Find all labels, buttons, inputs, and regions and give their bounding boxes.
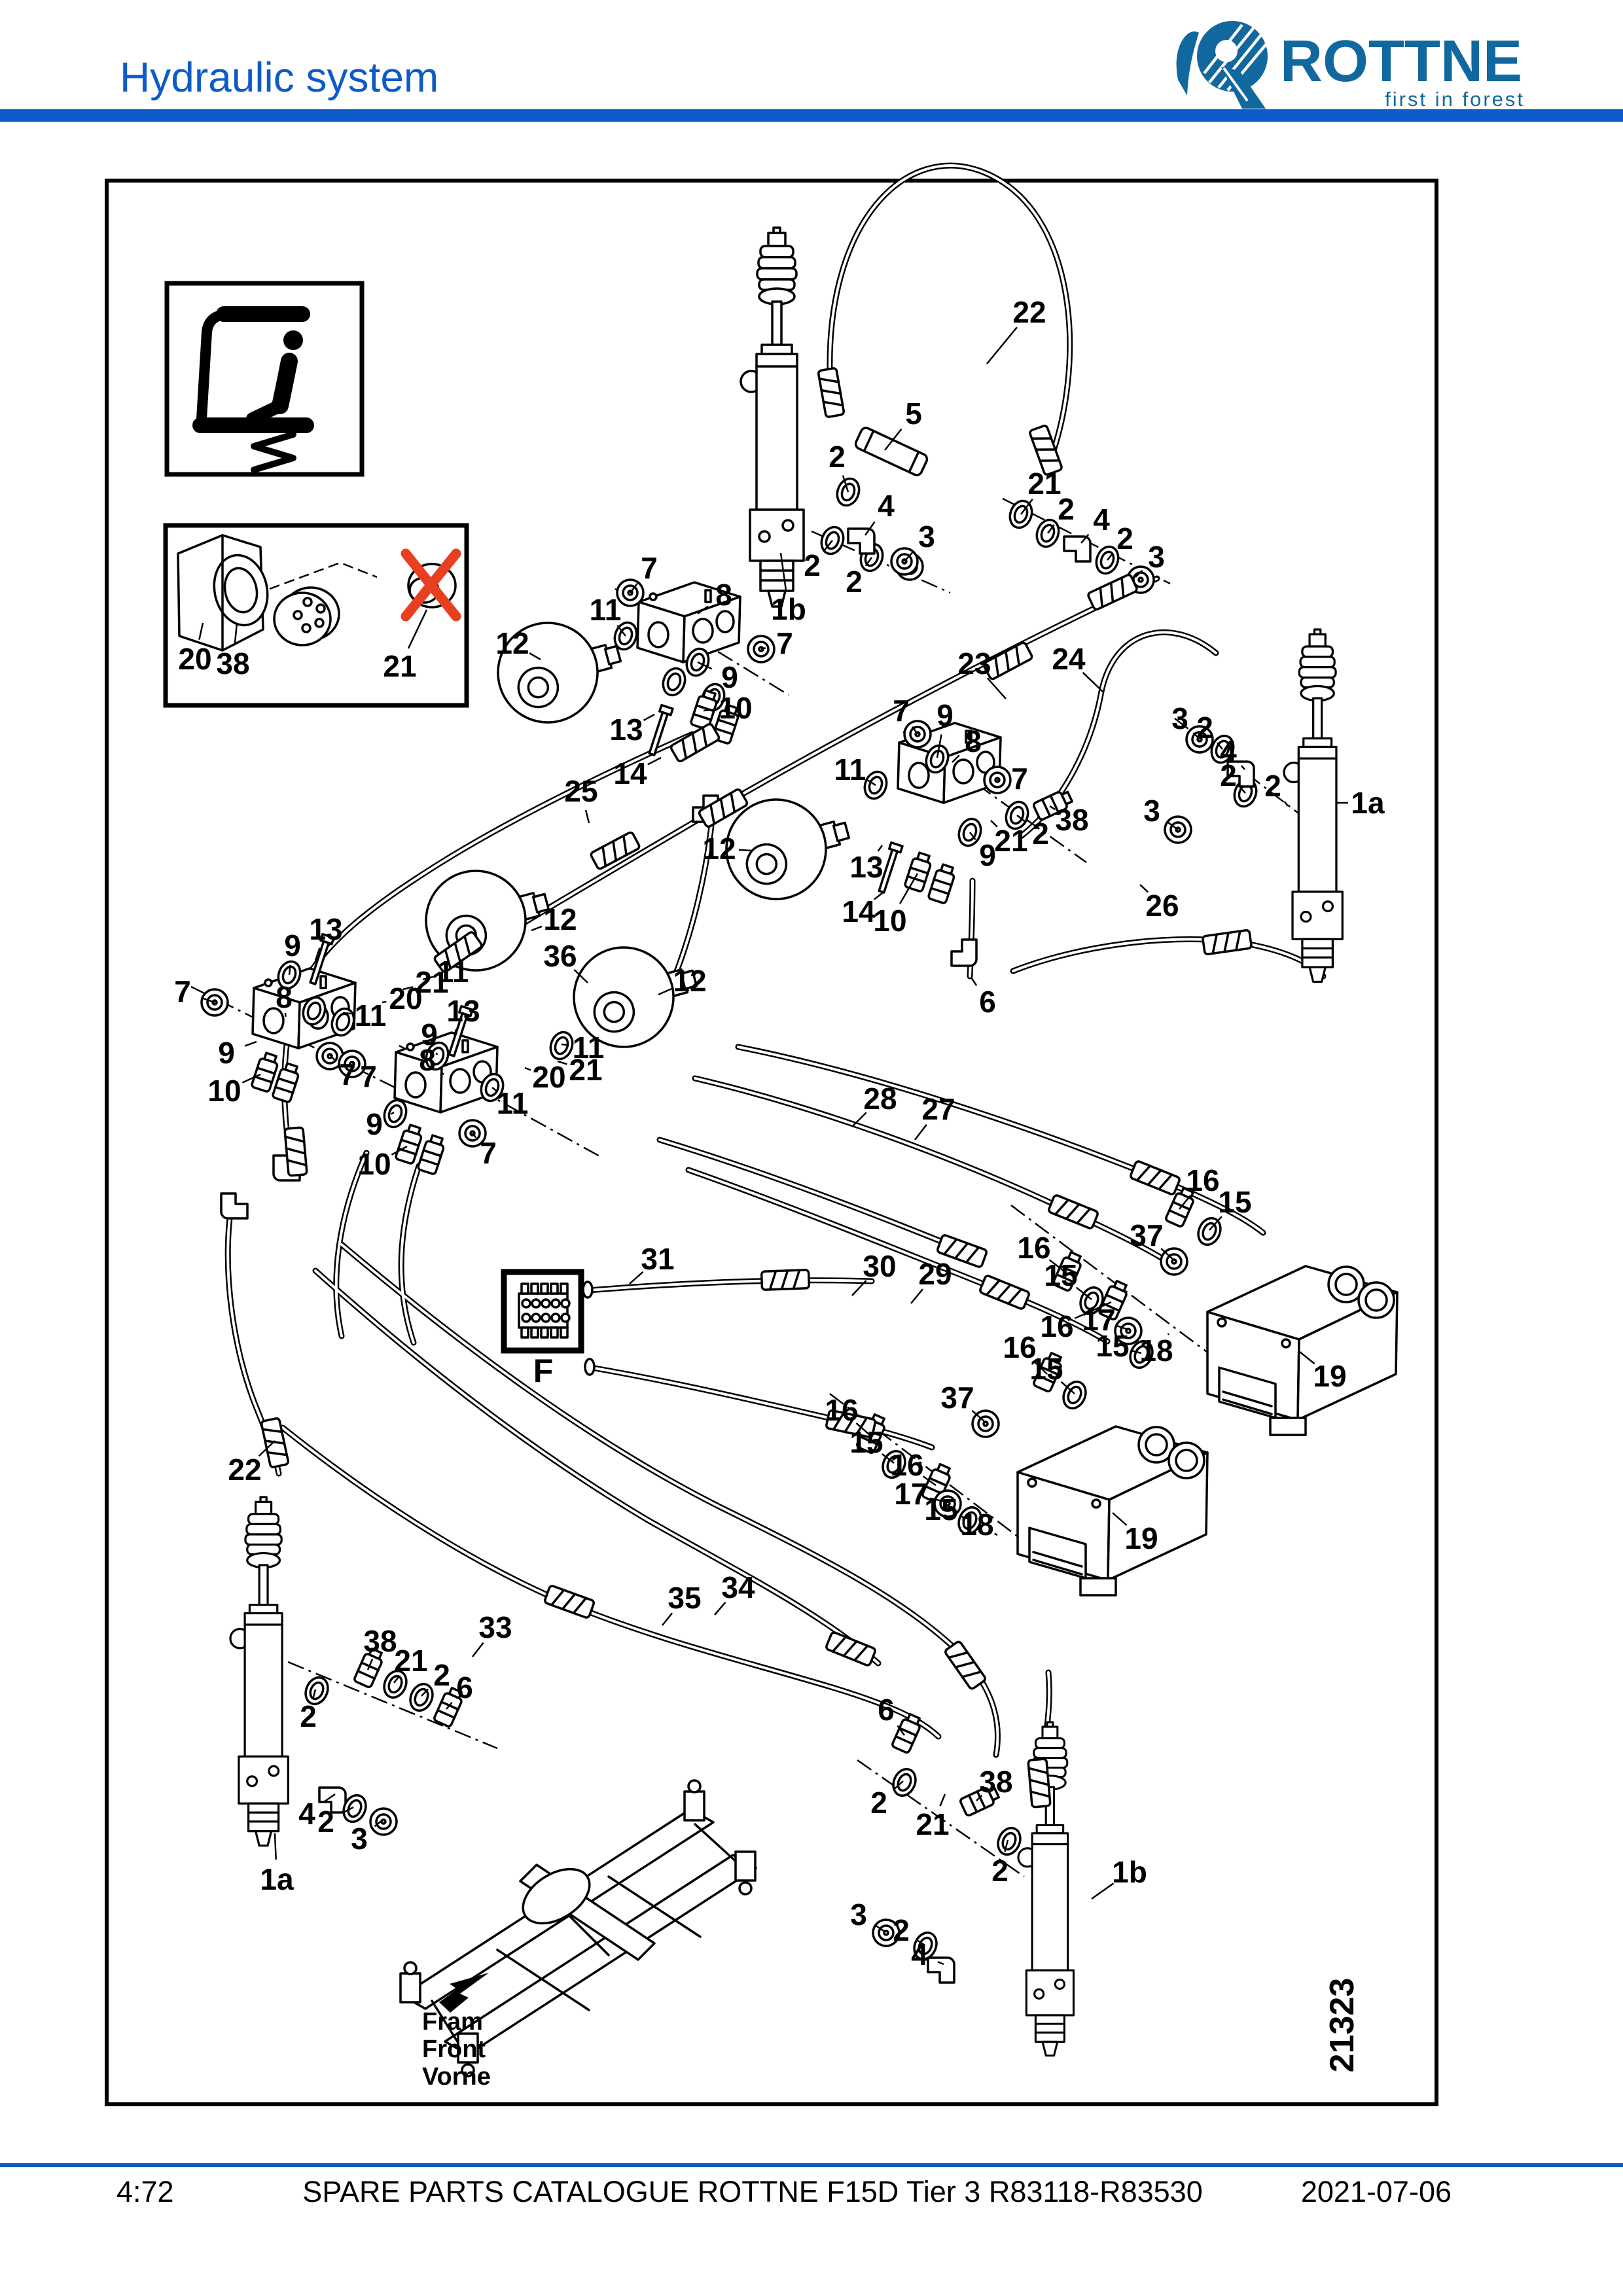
callout-2: 2 xyxy=(846,565,863,599)
leader-line xyxy=(437,1053,437,1055)
callout-7: 7 xyxy=(893,694,910,728)
callout-10: 10 xyxy=(207,1074,241,1108)
leader-line xyxy=(940,1794,945,1806)
callout-1b: 1b xyxy=(771,592,806,626)
callout-2: 2 xyxy=(1116,521,1133,556)
callout-2: 2 xyxy=(1058,492,1075,526)
callout-4: 4 xyxy=(298,1797,315,1831)
callout-13: 13 xyxy=(609,713,643,747)
leader-line xyxy=(971,978,976,985)
callout-9: 9 xyxy=(218,1036,235,1070)
leader-line xyxy=(562,1044,569,1045)
callout-3: 3 xyxy=(351,1822,368,1856)
callout-25: 25 xyxy=(564,774,597,808)
callout-28: 28 xyxy=(863,1082,897,1116)
callout-18: 18 xyxy=(1139,1333,1173,1368)
callout-6: 6 xyxy=(456,1670,473,1704)
leader-line xyxy=(473,1643,484,1657)
callout-2: 2 xyxy=(829,440,846,474)
callout-11: 11 xyxy=(497,1086,529,1120)
front-label-de: Vorne xyxy=(422,2063,491,2091)
callout-15: 15 xyxy=(1029,1352,1063,1386)
leader-line xyxy=(1083,673,1103,692)
callout-16: 16 xyxy=(825,1393,858,1427)
crossed-out-washer xyxy=(406,554,456,616)
callout-13: 13 xyxy=(446,994,480,1028)
leader-line xyxy=(442,1073,444,1074)
leader-line xyxy=(995,1534,997,1535)
solenoid-valve-19 xyxy=(1018,1426,1207,1595)
callout-35: 35 xyxy=(668,1581,701,1615)
callout-2: 2 xyxy=(870,1786,887,1820)
callout-27: 27 xyxy=(921,1092,955,1126)
callout-37: 37 xyxy=(940,1381,974,1415)
seat-function-inset xyxy=(167,283,362,474)
callout-12: 12 xyxy=(702,832,736,866)
hydraulic-diagram: Fram Front Vorne xyxy=(0,0,1623,2296)
callout-20: 20 xyxy=(178,642,211,676)
front-label-en: Front xyxy=(422,2036,486,2063)
callout-38: 38 xyxy=(216,646,249,680)
catalogue-page: Hydraulic system ROTTNE first in forest xyxy=(0,0,1623,2296)
leader-line xyxy=(648,758,661,764)
callout-7: 7 xyxy=(641,551,658,585)
callout-9: 9 xyxy=(936,698,954,732)
callout-34: 34 xyxy=(721,1570,755,1604)
solenoid-valve-19 xyxy=(1207,1266,1397,1435)
front-label-sv: Fram xyxy=(422,2008,483,2036)
leader-line xyxy=(761,648,766,649)
callout-10: 10 xyxy=(357,1147,391,1181)
callout-2: 2 xyxy=(804,548,821,582)
callout-7: 7 xyxy=(1011,762,1028,796)
hose-open-end xyxy=(583,1282,592,1298)
leader-line xyxy=(289,965,291,975)
callout-15: 15 xyxy=(1218,1185,1251,1219)
connector-f-label: F xyxy=(533,1352,554,1389)
callout-7: 7 xyxy=(480,1136,497,1170)
callout-7: 7 xyxy=(776,626,793,660)
callout-1a: 1a xyxy=(260,1862,294,1896)
callout-21: 21 xyxy=(569,1053,602,1087)
leader-line xyxy=(874,891,885,900)
callout-20: 20 xyxy=(532,1060,565,1094)
callout-38: 38 xyxy=(1055,803,1088,837)
callout-11: 11 xyxy=(355,998,387,1033)
hose-open-end xyxy=(585,1359,594,1375)
callout-21: 21 xyxy=(1027,467,1061,501)
callout-9: 9 xyxy=(366,1107,383,1141)
leader-line xyxy=(275,1833,276,1860)
leader-line xyxy=(988,678,1006,699)
callout-10: 10 xyxy=(719,691,752,725)
callout-2: 2 xyxy=(1220,758,1237,792)
callout-11: 11 xyxy=(590,593,622,627)
leader-line xyxy=(704,709,716,711)
leader-line xyxy=(531,927,542,930)
callout-15: 15 xyxy=(849,1425,883,1459)
callout-6: 6 xyxy=(979,985,996,1019)
callout-12: 12 xyxy=(543,902,577,936)
callout-37: 37 xyxy=(1130,1218,1163,1252)
callout-15: 15 xyxy=(1044,1258,1077,1292)
callout-2: 2 xyxy=(1196,711,1213,745)
callout-3: 3 xyxy=(850,1898,867,1932)
leader-line xyxy=(662,1613,672,1625)
callout-19: 19 xyxy=(1124,1521,1158,1555)
callout-11: 11 xyxy=(834,752,866,786)
callout-2: 2 xyxy=(317,1805,334,1839)
callout-1a: 1a xyxy=(1351,786,1385,820)
callout-8: 8 xyxy=(965,724,982,758)
callout-2: 2 xyxy=(433,1658,450,1692)
superseded-part-inset xyxy=(166,525,467,705)
callout-15: 15 xyxy=(1096,1329,1129,1363)
leader-line xyxy=(911,1289,923,1303)
callout-4: 4 xyxy=(1093,503,1110,537)
callout-31: 31 xyxy=(641,1242,674,1276)
leader-line xyxy=(586,810,589,823)
callout-2: 2 xyxy=(300,1699,317,1733)
callout-5: 5 xyxy=(905,397,922,431)
leader-line xyxy=(525,1068,531,1070)
callout-26: 26 xyxy=(1145,889,1179,923)
connector-f-inset: F xyxy=(504,1272,581,1389)
footer-date: 2021-07-06 xyxy=(1301,2175,1452,2209)
callout-36: 36 xyxy=(543,939,577,973)
callout-4: 4 xyxy=(878,489,895,523)
callout-4: 4 xyxy=(911,1937,928,1971)
callout-9: 9 xyxy=(979,838,996,872)
leader-line xyxy=(1285,802,1288,806)
callout-12: 12 xyxy=(673,964,706,998)
callout-3: 3 xyxy=(1171,701,1188,735)
callout-21: 21 xyxy=(394,1644,427,1678)
callout-16: 16 xyxy=(1186,1163,1219,1197)
callout-38: 38 xyxy=(979,1765,1012,1799)
callout-8: 8 xyxy=(419,1043,436,1077)
leader-line xyxy=(739,850,751,851)
callout-2: 2 xyxy=(1032,817,1049,851)
callout-21: 21 xyxy=(383,649,416,683)
callout-17: 17 xyxy=(894,1477,927,1511)
valve-block-8 xyxy=(395,1033,497,1112)
seat-cylinder-1b-top xyxy=(741,228,804,607)
callout-21: 21 xyxy=(916,1807,949,1841)
leader-line xyxy=(343,1013,351,1014)
callout-14: 14 xyxy=(842,894,876,928)
leader-line xyxy=(382,1002,386,1002)
callout-38: 38 xyxy=(363,1624,397,1658)
seat-cylinder-1a-right xyxy=(1284,629,1342,981)
callout-24: 24 xyxy=(1052,642,1086,676)
callout-22: 22 xyxy=(228,1453,261,1487)
leader-line xyxy=(245,1042,257,1046)
footer-rule xyxy=(0,2163,1623,2167)
callout-2: 2 xyxy=(1264,769,1281,803)
callout-8: 8 xyxy=(715,578,732,612)
connector-icon xyxy=(519,1284,569,1337)
callout-11: 11 xyxy=(437,955,469,989)
callout-23: 23 xyxy=(957,646,991,680)
footer-catalogue-title: SPARE PARTS CATALOGUE ROTTNE F15D Tier 3… xyxy=(0,2175,1505,2209)
callout-3: 3 xyxy=(1143,794,1160,828)
callout-14: 14 xyxy=(613,756,647,790)
callout-33: 33 xyxy=(478,1610,512,1644)
callout-1b: 1b xyxy=(1112,1855,1147,1889)
callout-9: 9 xyxy=(284,928,301,963)
callout-9: 9 xyxy=(721,660,738,694)
callout-18: 18 xyxy=(960,1508,993,1542)
callout-13: 13 xyxy=(309,912,342,946)
callout-15: 15 xyxy=(924,1492,957,1527)
callout-3: 3 xyxy=(918,520,935,554)
callout-29: 29 xyxy=(918,1257,952,1291)
callout-19: 19 xyxy=(1313,1359,1346,1393)
leader-line xyxy=(1092,1883,1114,1899)
callout-21: 21 xyxy=(994,824,1027,858)
callout-6: 6 xyxy=(878,1693,895,1727)
callout-30: 30 xyxy=(863,1249,896,1283)
callout-8: 8 xyxy=(276,980,293,1014)
callout-16: 16 xyxy=(1040,1309,1073,1343)
seat-cylinder-1a-bottom xyxy=(230,1497,288,1846)
callout-7: 7 xyxy=(174,974,191,1008)
callout-3: 3 xyxy=(1148,540,1165,574)
leader-line xyxy=(987,327,1017,364)
leader-line xyxy=(915,1125,927,1140)
callout-22: 22 xyxy=(1012,295,1046,329)
callout-2: 2 xyxy=(893,1913,910,1947)
callout-10: 10 xyxy=(873,904,906,938)
callout-7: 7 xyxy=(360,1059,377,1093)
callout-2: 2 xyxy=(991,1854,1008,1888)
figure-number: 21323 xyxy=(1323,1978,1361,2073)
callout-13: 13 xyxy=(849,850,883,884)
callout-12: 12 xyxy=(495,626,529,660)
leader-line xyxy=(643,715,654,720)
